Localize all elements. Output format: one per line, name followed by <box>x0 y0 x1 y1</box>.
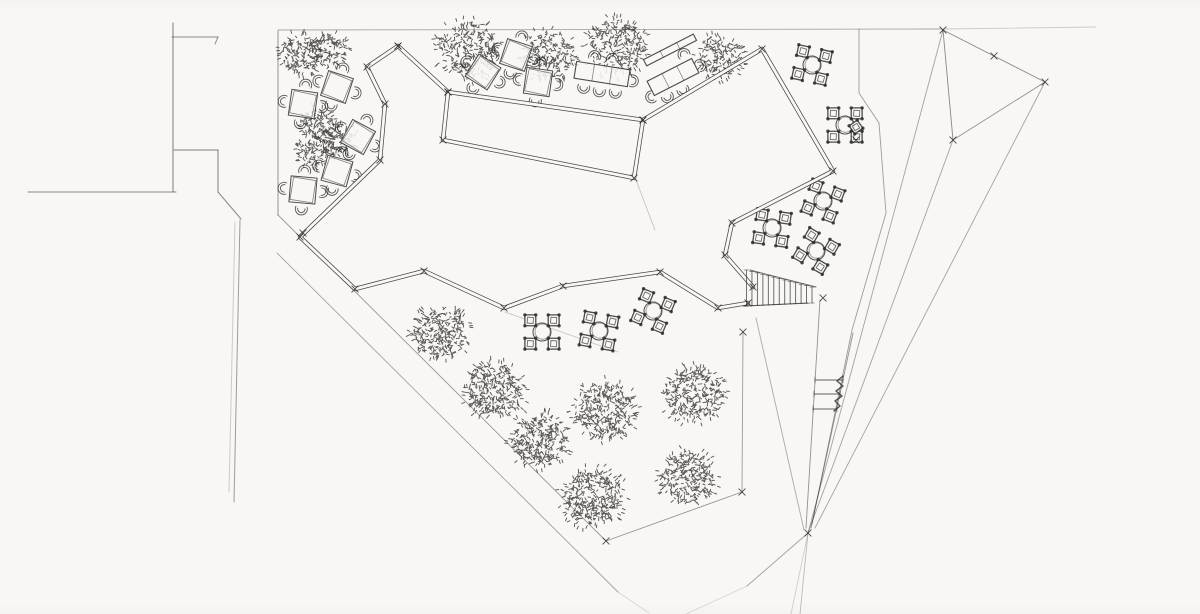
construction-line <box>800 533 808 614</box>
diamond-corner-dot <box>837 117 840 120</box>
diamond-corner-dot <box>837 106 840 109</box>
street-line <box>234 220 240 502</box>
chair <box>299 165 311 174</box>
diamond-corner-dot <box>557 313 560 316</box>
table-top <box>574 61 630 86</box>
chair <box>609 89 621 98</box>
diamond-corner-dot <box>837 140 840 143</box>
diamond-corner-dot <box>633 309 636 312</box>
round-table <box>791 226 841 276</box>
diamond-corner-dot <box>594 311 597 314</box>
diamond-corner-dot <box>617 315 620 318</box>
diamond-chair <box>774 233 790 249</box>
chair <box>295 206 307 215</box>
table-top <box>644 302 662 320</box>
diamond-chair <box>813 71 829 87</box>
diamond-outline <box>819 50 832 63</box>
diamond-corner-dot <box>832 221 835 224</box>
diamond-corner-dot <box>788 223 791 226</box>
diamond-corner-dot <box>799 210 802 213</box>
diamond-corner-dot <box>826 117 829 120</box>
diamond-corner-dot <box>807 188 810 191</box>
diamond-corner-dot <box>791 256 794 259</box>
street-line <box>218 192 241 219</box>
diamond-chair <box>850 106 864 120</box>
diamond-chair <box>818 48 834 64</box>
construction-line <box>756 318 804 530</box>
diamond-chair <box>577 332 593 348</box>
diamond-corner-dot <box>835 211 838 214</box>
diamond-corner-dot <box>615 326 618 329</box>
diamond-corner-dot <box>547 324 550 327</box>
diamond-corner-dot <box>786 235 789 238</box>
tree <box>556 464 630 532</box>
diamond-outline <box>753 232 765 244</box>
diamond-corner-dot <box>840 199 843 202</box>
diamond-corner-dot <box>762 242 765 245</box>
diamond-chair <box>547 337 561 351</box>
diamond-corner-dot <box>829 196 832 199</box>
diamond-corner-dot <box>642 287 645 290</box>
table-top <box>807 242 825 260</box>
diamond-corner-dot <box>523 324 526 327</box>
table-top <box>814 192 832 210</box>
diamond-corner-dot <box>583 309 586 312</box>
diamond-chair <box>811 258 829 276</box>
diamond-outline <box>525 338 536 349</box>
diamond-corner-dot <box>813 203 816 206</box>
diamond-corner-dot <box>808 226 811 229</box>
diamond-outline <box>652 319 666 333</box>
diamond-chair <box>795 43 811 59</box>
construction-line <box>636 180 655 230</box>
construction-lines <box>277 27 1096 614</box>
table-top <box>523 67 552 96</box>
diamond-corner-dot <box>785 246 788 249</box>
diamond-chair <box>600 337 616 353</box>
diamond-outline <box>797 45 810 58</box>
diamond-corner-dot <box>557 337 560 340</box>
chair <box>278 182 287 194</box>
diamond-corner-dot <box>847 124 850 127</box>
street-lines <box>28 23 241 502</box>
chair <box>492 43 502 55</box>
diamond-outline <box>792 68 805 81</box>
square-table <box>313 63 361 111</box>
diamond-corner-dot <box>818 191 821 194</box>
diamond-corner-dot <box>828 238 831 241</box>
diamond-corner-dot <box>860 140 863 143</box>
diamond-outline <box>828 131 839 142</box>
x-mark <box>603 538 609 544</box>
diamond-outline <box>579 334 592 347</box>
diamond-corner-dot <box>534 324 537 327</box>
diamond-chair <box>605 314 621 330</box>
construction-line <box>278 29 943 30</box>
diamond-corner-dot <box>547 313 550 316</box>
chair <box>578 84 590 93</box>
diamond-corner-dot <box>826 263 829 266</box>
diamond-corner-dot <box>577 343 580 346</box>
diamond-corner-dot <box>821 273 824 276</box>
diamond-corner-dot <box>850 117 853 120</box>
diamond-outline <box>801 201 815 215</box>
tree <box>661 362 729 426</box>
diamond-corner-dot <box>611 349 614 352</box>
diamond-corner-dot <box>790 76 793 79</box>
diamond-corner-dot <box>817 258 820 261</box>
diamond-corner-dot <box>792 66 795 69</box>
diamond-corner-dot <box>797 43 800 46</box>
diamond-outline <box>631 310 645 324</box>
ribbon-upper-a-core <box>398 46 448 92</box>
diamond-corner-dot <box>523 337 526 340</box>
diamond-corner-dot <box>810 213 813 216</box>
diamond-corner-dot <box>808 45 811 48</box>
diamond-corner-dot <box>806 56 809 59</box>
diamond-corner-dot <box>534 313 537 316</box>
diamond-corner-dot <box>803 235 806 238</box>
chair <box>313 160 323 172</box>
diamond-corner-dot <box>826 130 829 133</box>
diamond-corner-dot <box>795 54 798 57</box>
chair <box>313 75 323 87</box>
x-mark <box>991 53 997 59</box>
diamond-outline <box>804 228 819 243</box>
diamond-corner-dot <box>547 347 550 350</box>
diamond-corner-dot <box>826 106 829 109</box>
diamond-corner-dot <box>776 233 779 236</box>
round-table <box>629 287 677 335</box>
diamond-corner-dot <box>669 310 672 313</box>
chair <box>494 76 505 88</box>
diamond-outline <box>831 187 845 201</box>
diamond-corner-dot <box>605 324 608 327</box>
diamond-corner-dot <box>815 71 818 74</box>
construction-line <box>943 27 1096 29</box>
construction-line <box>686 586 747 614</box>
diamond-outline <box>851 108 862 119</box>
diamond-corner-dot <box>825 207 828 210</box>
diamond-corner-dot <box>820 48 823 51</box>
diamond-corner-dot <box>665 321 668 324</box>
diamond-outline <box>548 338 559 349</box>
diamond-corner-dot <box>837 130 840 133</box>
diamond-corner-dot <box>856 118 859 121</box>
diamond-corner-dot <box>765 219 768 222</box>
diamond-corner-dot <box>801 79 804 82</box>
x-mark <box>820 295 826 301</box>
tree <box>406 306 473 362</box>
square-table <box>313 147 362 196</box>
diamond-chair <box>547 313 561 327</box>
chair <box>513 73 522 85</box>
diamond-chair <box>790 66 806 82</box>
chair <box>554 79 563 91</box>
chair <box>504 69 516 79</box>
diamond-corner-dot <box>557 324 560 327</box>
chair <box>629 75 638 87</box>
diamond-corner-dot <box>790 212 793 215</box>
diamond-chair <box>523 313 537 327</box>
diamond-outline <box>813 260 828 275</box>
diamond-outline <box>602 338 615 351</box>
diamond-corner-dot <box>843 189 846 192</box>
diamond-corner-dot <box>751 241 754 244</box>
chair <box>278 95 287 107</box>
diamond-outline <box>823 209 837 223</box>
diamond-corner-dot <box>674 300 677 303</box>
construction-line <box>277 253 618 592</box>
diamond-outline <box>779 212 791 224</box>
diamond-corner-dot <box>557 347 560 350</box>
diamond-corner-dot <box>777 221 780 224</box>
diamond-corner-dot <box>752 230 755 233</box>
diamond-corner-dot <box>821 181 824 184</box>
chair <box>361 114 373 125</box>
chair <box>351 87 361 99</box>
diamond-corner-dot <box>523 347 526 350</box>
street-line <box>215 37 218 44</box>
diamond-corner-dot <box>803 68 806 71</box>
diamond-corner-dot <box>638 297 641 300</box>
diamond-corner-dot <box>661 332 664 335</box>
construction-line <box>811 333 853 528</box>
diamond-corner-dot <box>813 81 816 84</box>
diamond-corner-dot <box>600 347 603 350</box>
construction-line <box>953 82 1045 140</box>
sketch-canvas <box>0 0 1200 614</box>
round-table <box>790 43 834 87</box>
chair <box>300 79 312 88</box>
table-top <box>288 89 317 118</box>
diamond-corner-dot <box>659 306 662 309</box>
construction-line <box>606 492 742 541</box>
diamond-outline <box>583 311 596 324</box>
diamond-chair <box>826 130 840 144</box>
chair <box>337 63 349 73</box>
diamond-corner-dot <box>850 106 853 109</box>
diamond-corner-dot <box>817 231 820 234</box>
round-table <box>751 207 793 249</box>
x-mark <box>1042 79 1048 85</box>
diamond-corner-dot <box>582 320 585 323</box>
diamond-corner-dot <box>800 261 803 264</box>
diamond-corner-dot <box>818 59 821 62</box>
construction-line <box>812 29 886 524</box>
diamond-corner-dot <box>629 319 632 322</box>
diamond-chair <box>751 230 767 246</box>
diamond-corner-dot <box>812 241 815 244</box>
diamond-corner-dot <box>534 347 537 350</box>
ladder <box>813 376 843 412</box>
diamond-corner-dot <box>806 252 809 255</box>
diamond-outline <box>793 248 808 263</box>
diamond-outline <box>661 297 675 311</box>
tree <box>276 29 327 78</box>
round-table <box>523 313 561 351</box>
diamond-corner-dot <box>860 106 863 109</box>
chair <box>678 49 690 60</box>
diamond-corner-dot <box>754 218 757 221</box>
diamond-corner-dot <box>643 313 646 316</box>
diamond-chair <box>791 246 809 264</box>
diamond-corner-dot <box>823 247 826 250</box>
diamond-outline <box>525 315 536 326</box>
diamond-corner-dot <box>534 337 537 340</box>
diamond-corner-dot <box>811 267 814 270</box>
diamond-chair <box>803 226 821 244</box>
diamond-corner-dot <box>774 244 777 247</box>
diamond-outline <box>828 108 839 119</box>
diamond-corner-dot <box>579 332 582 335</box>
diamond-corner-dot <box>648 301 651 304</box>
round-table <box>577 309 620 352</box>
ribbon-planter-core <box>443 92 643 178</box>
diamond-corner-dot <box>803 199 806 202</box>
diamond-corner-dot <box>832 252 835 255</box>
diamond-corner-dot <box>663 296 666 299</box>
diamond-corner-dot <box>860 117 863 120</box>
construction-line <box>815 82 1045 528</box>
diamond-corner-dot <box>652 291 655 294</box>
tree <box>567 375 641 444</box>
diamond-corner-dot <box>523 313 526 316</box>
tree <box>505 408 573 472</box>
diamond-outline <box>548 315 559 326</box>
diamond-corner-dot <box>861 127 864 130</box>
chair <box>593 88 605 97</box>
diamond-corner-dot <box>590 334 593 337</box>
diamond-corner-dot <box>826 73 829 76</box>
square-table <box>278 165 328 215</box>
diamond-corner-dot <box>831 50 834 53</box>
diamond-chair <box>823 238 841 256</box>
construction-line <box>808 30 943 533</box>
diamond-corner-dot <box>821 218 824 221</box>
diamond-corner-dot <box>853 132 856 135</box>
diamond-corner-dot <box>826 140 829 143</box>
diamond-corner-dot <box>602 337 605 340</box>
ribbon-path <box>300 46 833 308</box>
street-line <box>229 222 235 492</box>
diamond-corner-dot <box>823 84 826 87</box>
tree <box>462 356 529 418</box>
diamond-chair <box>777 210 793 226</box>
diamond-corner-dot <box>779 210 782 213</box>
diamond-corner-dot <box>547 337 550 340</box>
diamond-corner-dot <box>828 61 831 64</box>
construction-line <box>742 332 743 492</box>
diamond-corner-dot <box>613 338 616 341</box>
tree <box>655 446 721 505</box>
diamond-chair <box>523 337 537 351</box>
diamond-outline <box>606 315 619 328</box>
diamond-corner-dot <box>639 323 642 326</box>
construction-line <box>618 592 649 613</box>
chair <box>516 31 528 41</box>
diamond-corner-dot <box>833 185 836 188</box>
diamond-outline <box>825 239 840 254</box>
diamond-chair <box>582 309 598 325</box>
diamond-outline <box>639 289 653 303</box>
square-table <box>461 50 505 94</box>
diamond-corner-dot <box>763 232 766 235</box>
site-plan-sketch <box>0 0 1200 614</box>
diamond-corner-dot <box>606 314 609 317</box>
diamond-outline <box>815 72 828 85</box>
diamond-corner-dot <box>592 322 595 325</box>
diamond-corner-dot <box>655 317 658 320</box>
diamond-outline <box>776 235 788 247</box>
diamond-chair <box>826 106 840 120</box>
table-top <box>803 56 821 74</box>
diamond-corner-dot <box>767 208 770 211</box>
construction-line <box>943 30 953 140</box>
diamond-corner-dot <box>651 327 654 330</box>
table-top <box>321 71 354 104</box>
diamond-corner-dot <box>588 345 591 348</box>
diamond-corner-dot <box>796 246 799 249</box>
diamond-corner-dot <box>838 243 841 246</box>
